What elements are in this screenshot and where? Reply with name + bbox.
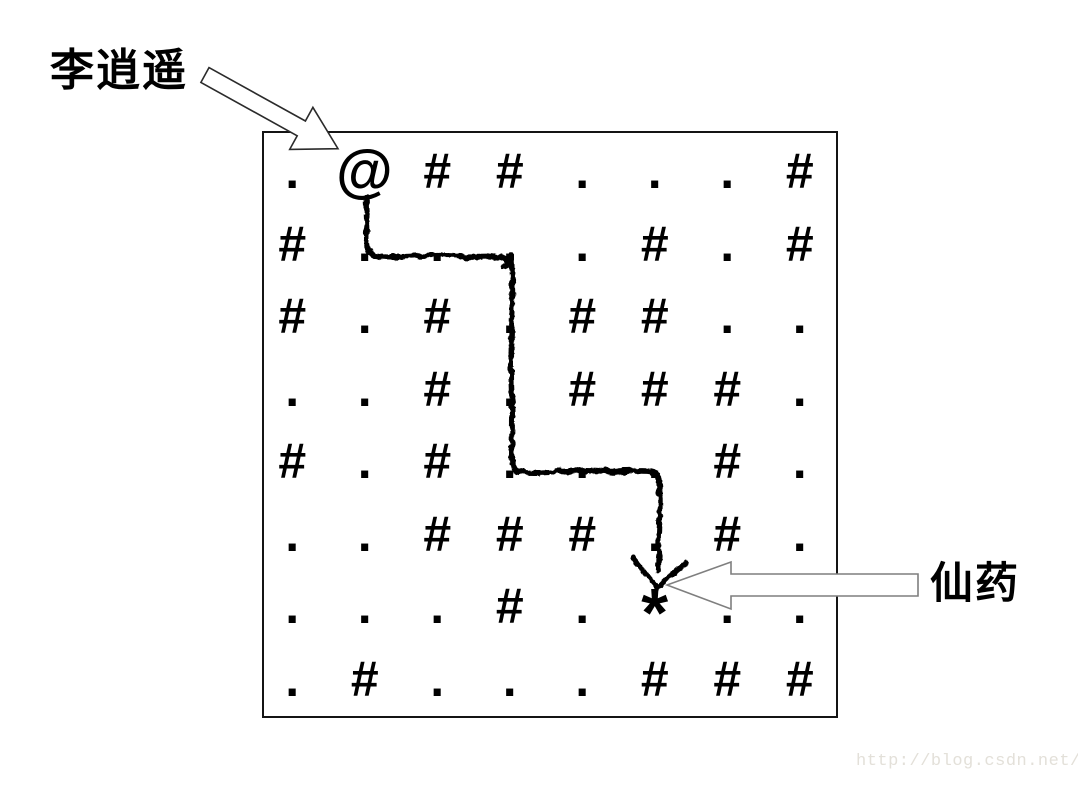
floor-dot: .: [329, 208, 402, 281]
floor-dot: .: [329, 498, 402, 571]
floor-dot: .: [546, 425, 619, 498]
floor-dot: .: [691, 570, 764, 643]
floor-dot: .: [474, 280, 547, 353]
maze-row: ..###.#.: [256, 498, 836, 571]
goal-label: 仙药: [930, 563, 1020, 606]
start-marker: @: [329, 135, 402, 208]
floor-dot: .: [764, 570, 837, 643]
floor-dot: .: [764, 353, 837, 426]
maze-row: #.#.##..: [256, 280, 836, 353]
floor-dot: .: [764, 425, 837, 498]
floor-dot: .: [764, 280, 837, 353]
wall-glyph: #: [764, 135, 837, 208]
floor-dot: .: [256, 570, 329, 643]
floor-dot: .: [619, 498, 692, 571]
floor-dot: .: [329, 280, 402, 353]
maze-grid: .@##...##....#.##.#.##....#.###.#.#...#.…: [256, 135, 836, 715]
floor-dot: .: [474, 425, 547, 498]
maze-row: .#...###: [256, 643, 836, 716]
maze-row: ..#.###.: [256, 353, 836, 426]
page-canvas: 李逍遥 仙药 .@##...##....#.##.#.##....#.###.#…: [0, 0, 1078, 786]
floor-dot: .: [474, 208, 547, 281]
wall-glyph: #: [474, 570, 547, 643]
wall-glyph: #: [691, 643, 764, 716]
floor-dot: .: [329, 353, 402, 426]
wall-glyph: #: [256, 208, 329, 281]
floor-dot: .: [256, 135, 329, 208]
wall-glyph: #: [401, 498, 474, 571]
maze-row: ...#.*..: [256, 570, 836, 643]
wall-glyph: #: [764, 208, 837, 281]
floor-dot: .: [401, 643, 474, 716]
floor-dot: .: [546, 135, 619, 208]
wall-glyph: #: [691, 353, 764, 426]
wall-glyph: #: [401, 280, 474, 353]
watermark-text: http://blog.csdn.net/: [856, 752, 1078, 771]
wall-glyph: #: [619, 353, 692, 426]
floor-dot: .: [401, 570, 474, 643]
wall-glyph: #: [401, 425, 474, 498]
wall-glyph: #: [546, 498, 619, 571]
wall-glyph: #: [691, 498, 764, 571]
goal-marker: *: [619, 570, 692, 643]
maze-row: #....#.#: [256, 208, 836, 281]
floor-dot: .: [401, 208, 474, 281]
floor-dot: .: [329, 425, 402, 498]
floor-dot: .: [691, 135, 764, 208]
wall-glyph: #: [691, 425, 764, 498]
floor-dot: .: [691, 280, 764, 353]
wall-glyph: #: [764, 643, 837, 716]
maze-row: .@##...#: [256, 135, 836, 208]
wall-glyph: #: [256, 280, 329, 353]
floor-dot: .: [256, 498, 329, 571]
floor-dot: .: [546, 208, 619, 281]
floor-dot: .: [256, 353, 329, 426]
floor-dot: .: [619, 425, 692, 498]
wall-glyph: #: [256, 425, 329, 498]
floor-dot: .: [619, 135, 692, 208]
floor-dot: .: [329, 570, 402, 643]
wall-glyph: #: [329, 643, 402, 716]
floor-dot: .: [691, 208, 764, 281]
wall-glyph: #: [401, 135, 474, 208]
wall-glyph: #: [401, 353, 474, 426]
wall-glyph: #: [474, 498, 547, 571]
wall-glyph: #: [619, 280, 692, 353]
start-label: 李逍遥: [50, 49, 188, 93]
wall-glyph: #: [474, 135, 547, 208]
wall-glyph: #: [546, 280, 619, 353]
wall-glyph: #: [619, 208, 692, 281]
floor-dot: .: [474, 643, 547, 716]
floor-dot: .: [256, 643, 329, 716]
wall-glyph: #: [546, 353, 619, 426]
floor-dot: .: [546, 570, 619, 643]
floor-dot: .: [764, 498, 837, 571]
floor-dot: .: [474, 353, 547, 426]
maze-row: #.#...#.: [256, 425, 836, 498]
floor-dot: .: [546, 643, 619, 716]
